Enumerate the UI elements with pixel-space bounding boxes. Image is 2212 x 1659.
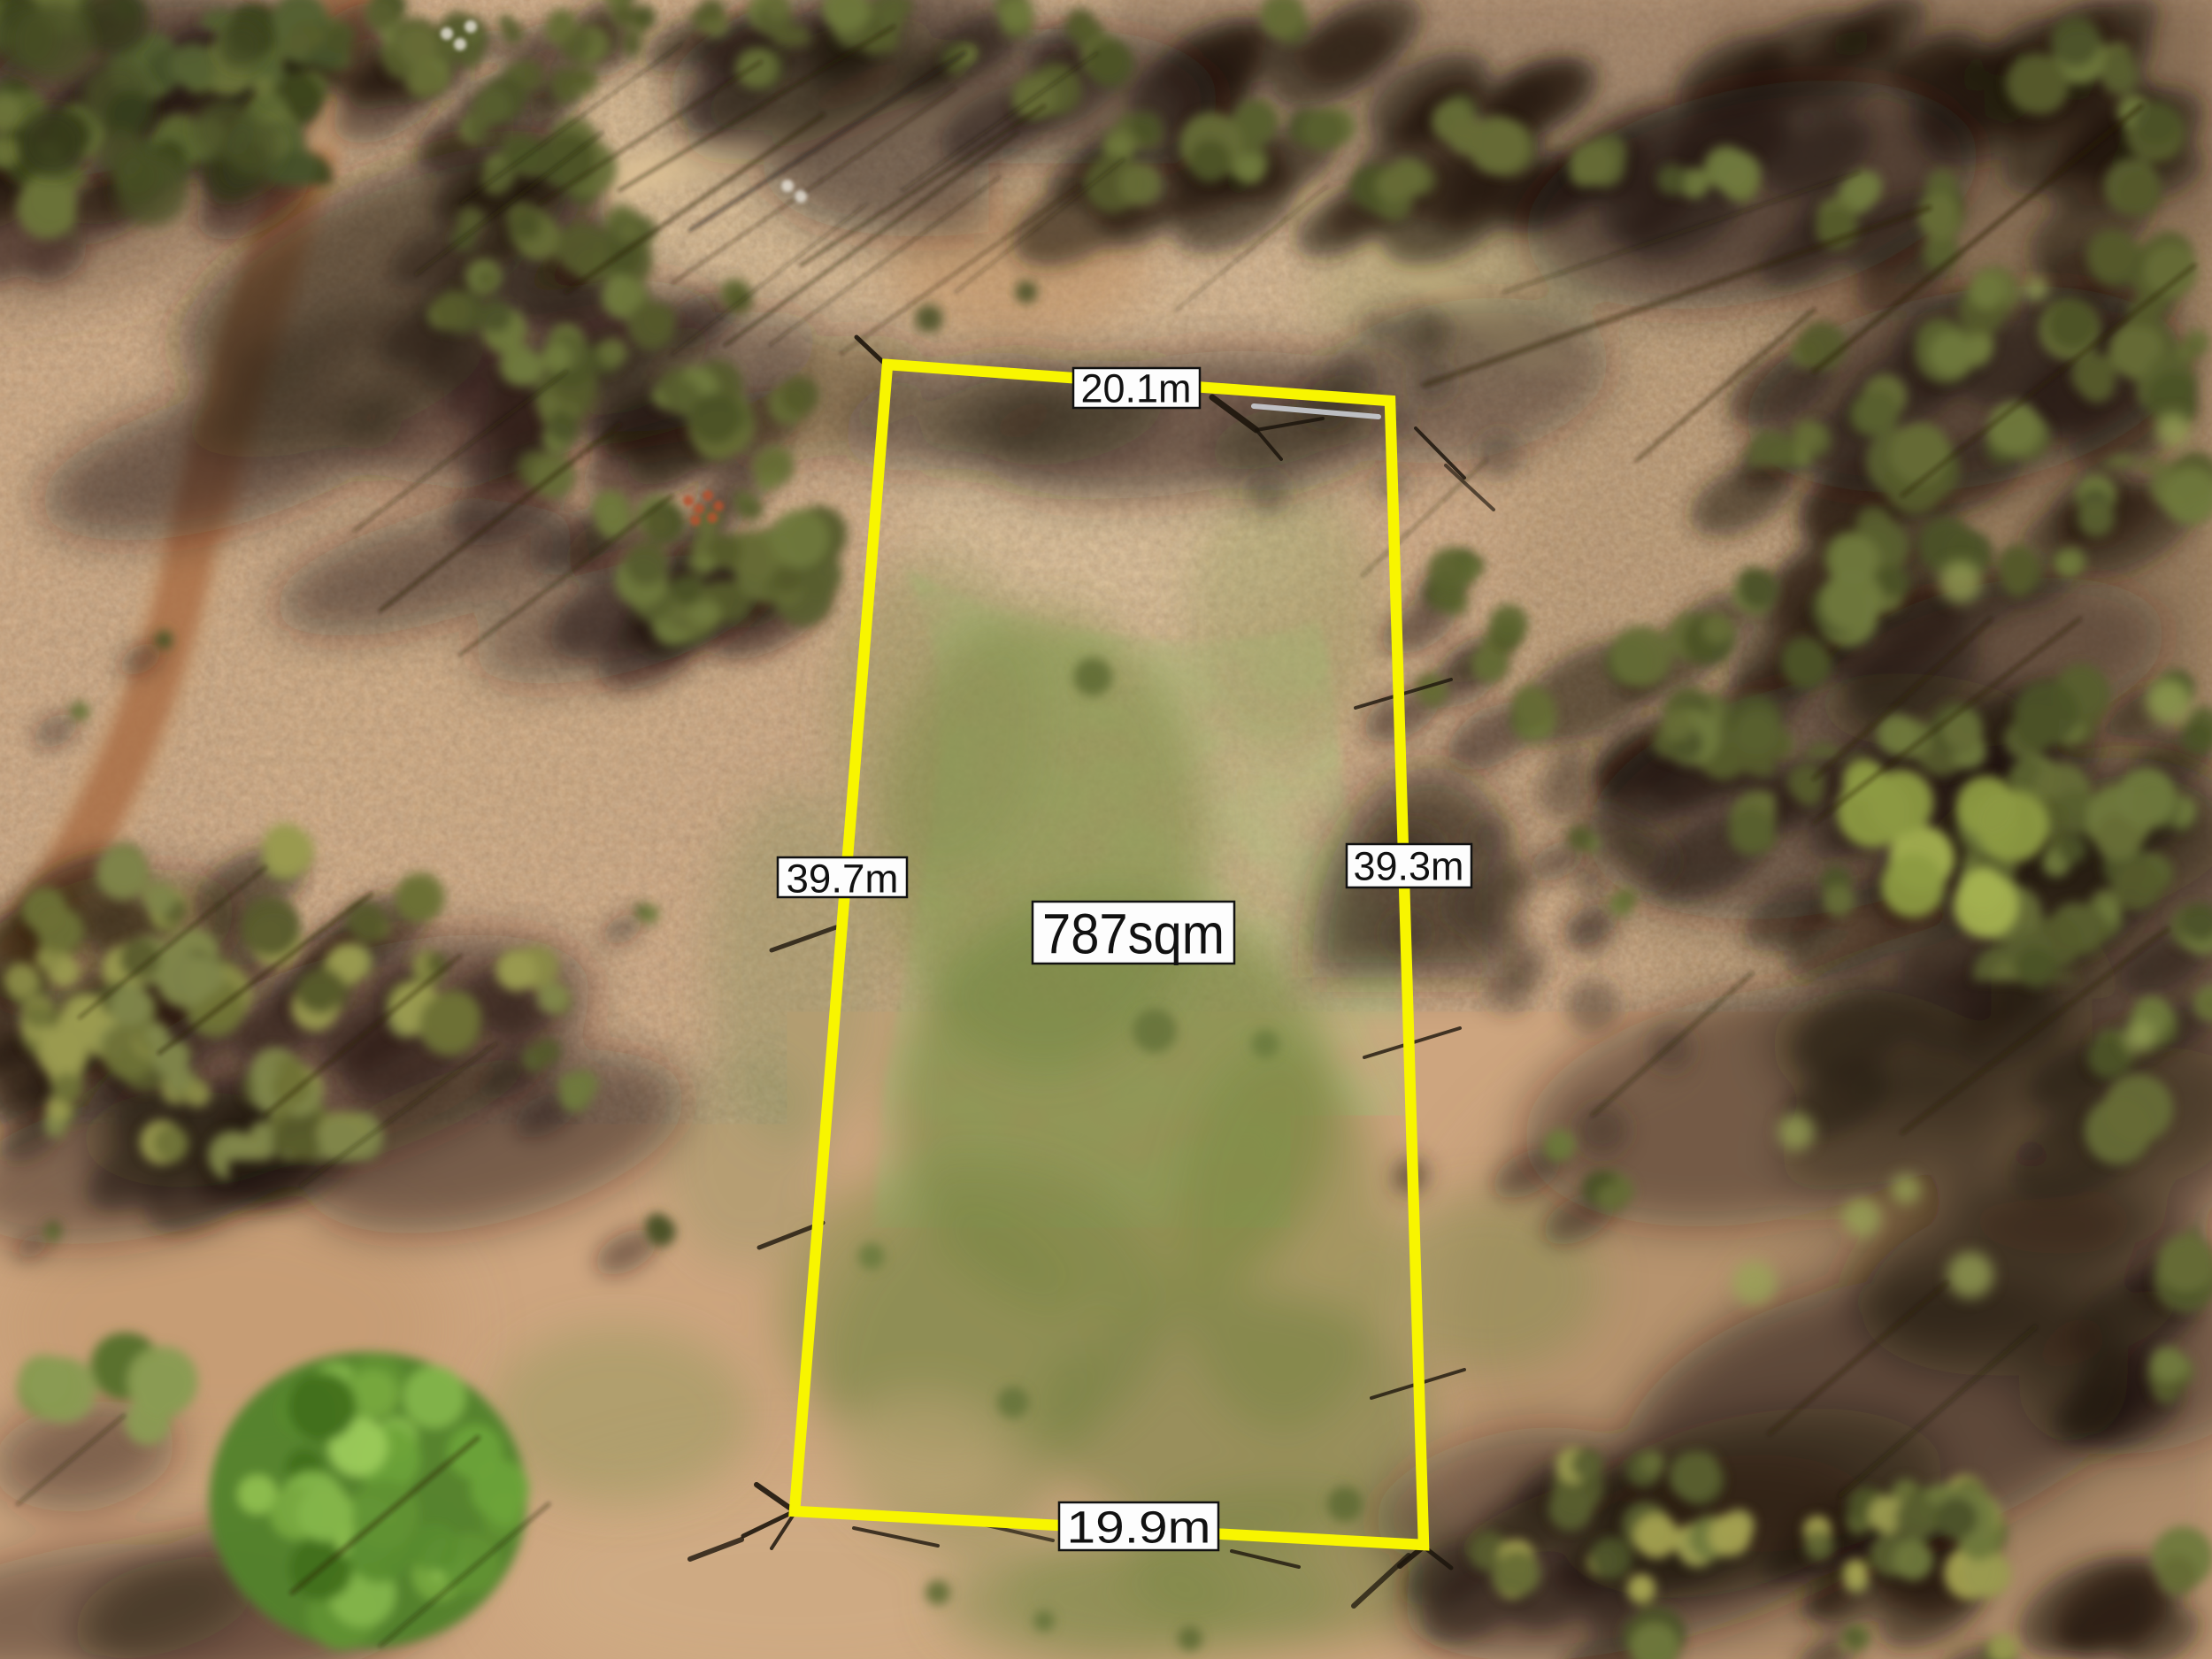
- svg-text:39.3m: 39.3m: [1354, 843, 1464, 888]
- svg-text:19.9m: 19.9m: [1067, 1502, 1211, 1553]
- svg-text:787sqm: 787sqm: [1042, 902, 1225, 965]
- svg-text:39.7m: 39.7m: [787, 856, 899, 901]
- svg-text:20.1m: 20.1m: [1081, 365, 1192, 411]
